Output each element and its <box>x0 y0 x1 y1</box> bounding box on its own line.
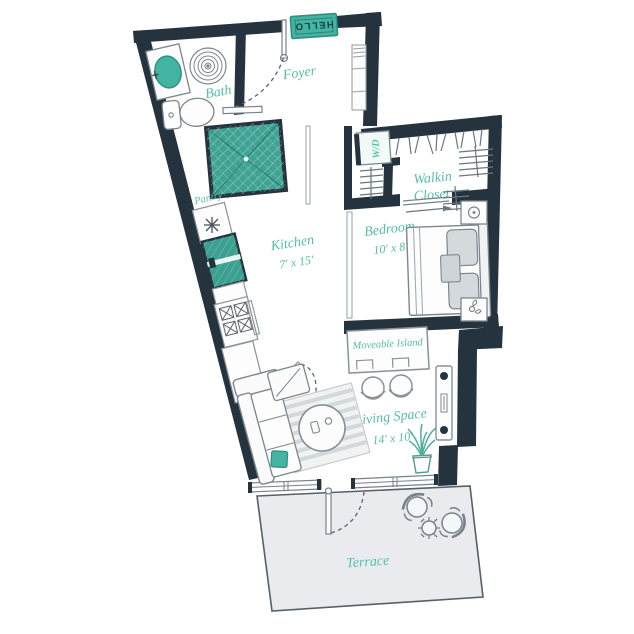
pantry-light <box>204 217 220 233</box>
bedroom-dims: 10' x 8' <box>373 239 409 257</box>
floor-plan-page: Terrace <box>0 0 634 634</box>
wall-bath-divider <box>234 26 246 115</box>
wall-wd-vertical <box>344 126 352 203</box>
bar-stool <box>389 375 413 397</box>
floor-plan: Terrace <box>0 0 634 634</box>
bedroom-partition <box>347 212 352 318</box>
wall-living-right-top <box>458 326 503 350</box>
kitchen-dims: 7' x 15' <box>278 252 315 271</box>
wall-living-right-mid <box>457 348 477 447</box>
terrace-label: Terrace <box>346 554 390 572</box>
nightstand-lamp <box>461 201 487 224</box>
wall-window <box>436 366 452 440</box>
teal-pillow <box>271 451 288 468</box>
terrace: Terrace <box>257 486 483 611</box>
doormat: HELLO <box>290 13 337 38</box>
hall-partition <box>306 126 310 204</box>
wd-closet-rod <box>360 167 383 199</box>
spiral-rug <box>190 48 226 84</box>
shower <box>206 121 286 197</box>
folded-throw <box>440 255 460 283</box>
bath-door <box>223 106 262 113</box>
nightstand-plant <box>461 298 487 321</box>
moveable-island: Moveable Island <box>347 327 429 373</box>
living-label: Living Space <box>353 406 428 429</box>
bath-label: Bath <box>204 83 233 102</box>
washer-dryer: W/D <box>354 131 391 165</box>
wall-wd-step-v <box>383 164 393 200</box>
bar-stool <box>361 377 385 399</box>
wd-label: W/D <box>371 139 383 158</box>
toilet <box>162 97 216 130</box>
wall-living-right-bottom <box>438 445 458 486</box>
foyer-label: Foyer <box>281 64 318 84</box>
wall-bedroom-top-left <box>344 194 400 210</box>
walkin-label-1: Walkin <box>413 169 453 187</box>
foyer-cabinet <box>352 45 366 110</box>
wall-top-left <box>133 20 285 43</box>
kitchen-label: Kitchen <box>269 233 315 255</box>
living-dims: 14' x 10' <box>372 429 414 447</box>
